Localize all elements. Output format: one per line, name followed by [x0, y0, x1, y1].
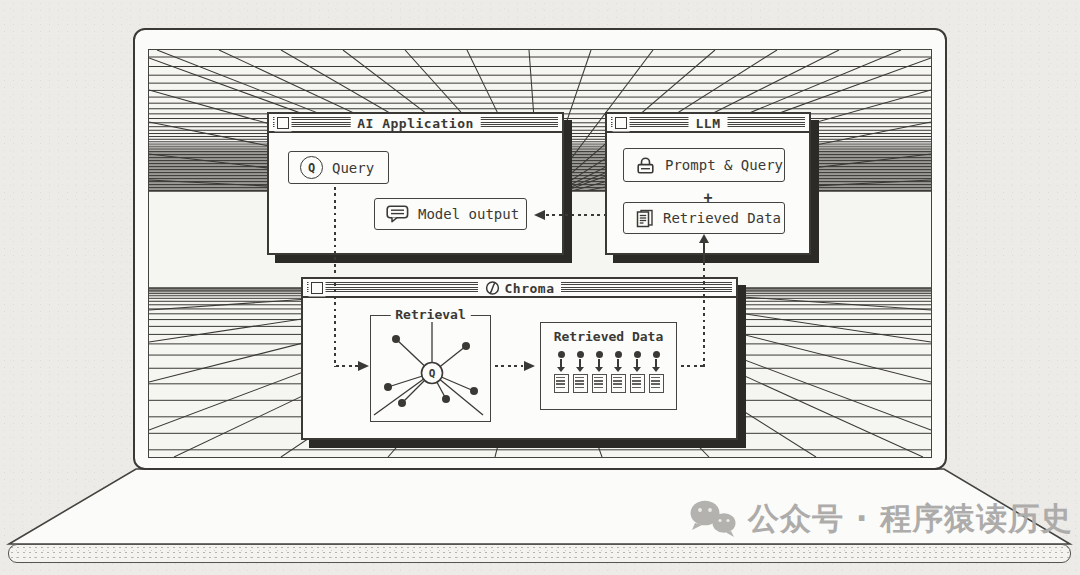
model-output-button-label: Model output — [418, 206, 519, 222]
laptop-base-front-edge — [8, 544, 1071, 563]
mini-document-icon — [573, 374, 588, 393]
chroma-title-label: Chroma — [505, 280, 555, 295]
document-icon — [635, 209, 654, 228]
down-arrow-icon — [614, 359, 622, 372]
window-ai-application: AI Application Q Query Model output — [267, 112, 564, 255]
llm-title: LLM — [689, 115, 728, 130]
embedding-dot — [653, 351, 660, 358]
mini-document-icon — [592, 374, 607, 393]
mini-document-icon — [649, 374, 664, 393]
retrieved-doc-column — [554, 351, 569, 393]
down-arrow-icon — [633, 359, 641, 372]
llm-retrieved-data-button-label: Retrieved Data — [663, 210, 781, 226]
prompt-query-button[interactable]: Prompt & Query — [623, 148, 785, 182]
down-arrow-icon — [576, 359, 584, 372]
embedding-dot — [596, 351, 603, 358]
window-chroma: Chroma Retrieval Q Retrieved Data — [301, 277, 738, 440]
down-arrow-icon — [595, 359, 603, 372]
mini-document-icon — [630, 374, 645, 393]
watermark: 公众号 · 程序猿读历史 — [688, 498, 1072, 540]
mini-document-icon — [611, 374, 626, 393]
embedding-dot — [577, 351, 584, 358]
embedding-dot — [558, 351, 565, 358]
retrieved-doc-column — [611, 351, 626, 393]
prompt-lock-icon — [635, 156, 656, 175]
ai-application-titlebar: AI Application — [269, 114, 562, 133]
ai-application-title: AI Application — [350, 115, 481, 130]
q-circle-icon: Q — [300, 156, 323, 179]
retrieved-data-box: Retrieved Data — [540, 322, 677, 410]
chroma-titlebar: Chroma — [303, 279, 736, 298]
window-llm: LLM Prompt & Query + Retrieved Data — [605, 112, 811, 255]
mini-document-icon — [554, 374, 569, 393]
close-box-icon[interactable] — [277, 117, 289, 129]
llm-titlebar: LLM — [607, 114, 809, 133]
retrieved-doc-column — [573, 351, 588, 393]
embedding-graph: Q — [371, 316, 486, 417]
chroma-title: Chroma — [478, 280, 562, 295]
retrieval-box: Retrieval Q — [370, 315, 491, 422]
close-box-icon[interactable] — [311, 282, 323, 294]
retrieved-doc-column — [592, 351, 607, 393]
wechat-icon — [688, 498, 738, 540]
retrieved-doc-column — [649, 351, 664, 393]
down-arrow-icon — [557, 359, 565, 372]
chroma-logo-icon — [485, 280, 500, 295]
query-button-label: Query — [332, 160, 374, 176]
retrieved-data-box-label: Retrieved Data — [541, 329, 676, 344]
speech-bubble-icon — [386, 205, 409, 223]
retrieval-label: Retrieval — [390, 307, 470, 322]
model-output-button[interactable]: Model output — [374, 198, 527, 230]
retrieved-data-columns — [541, 351, 676, 393]
embedding-dot — [634, 351, 641, 358]
watermark-text: 公众号 · 程序猿读历史 — [748, 498, 1072, 540]
prompt-query-button-label: Prompt & Query — [665, 157, 783, 173]
illustration-canvas: AI Application Q Query Model output LLM — [0, 0, 1080, 575]
svg-text:Q: Q — [429, 367, 436, 380]
down-arrow-icon — [652, 359, 660, 372]
close-box-icon[interactable] — [615, 117, 627, 129]
retrieved-doc-column — [630, 351, 645, 393]
query-button[interactable]: Q Query — [288, 151, 389, 184]
llm-retrieved-data-button[interactable]: Retrieved Data — [623, 202, 785, 234]
embedding-dot — [615, 351, 622, 358]
